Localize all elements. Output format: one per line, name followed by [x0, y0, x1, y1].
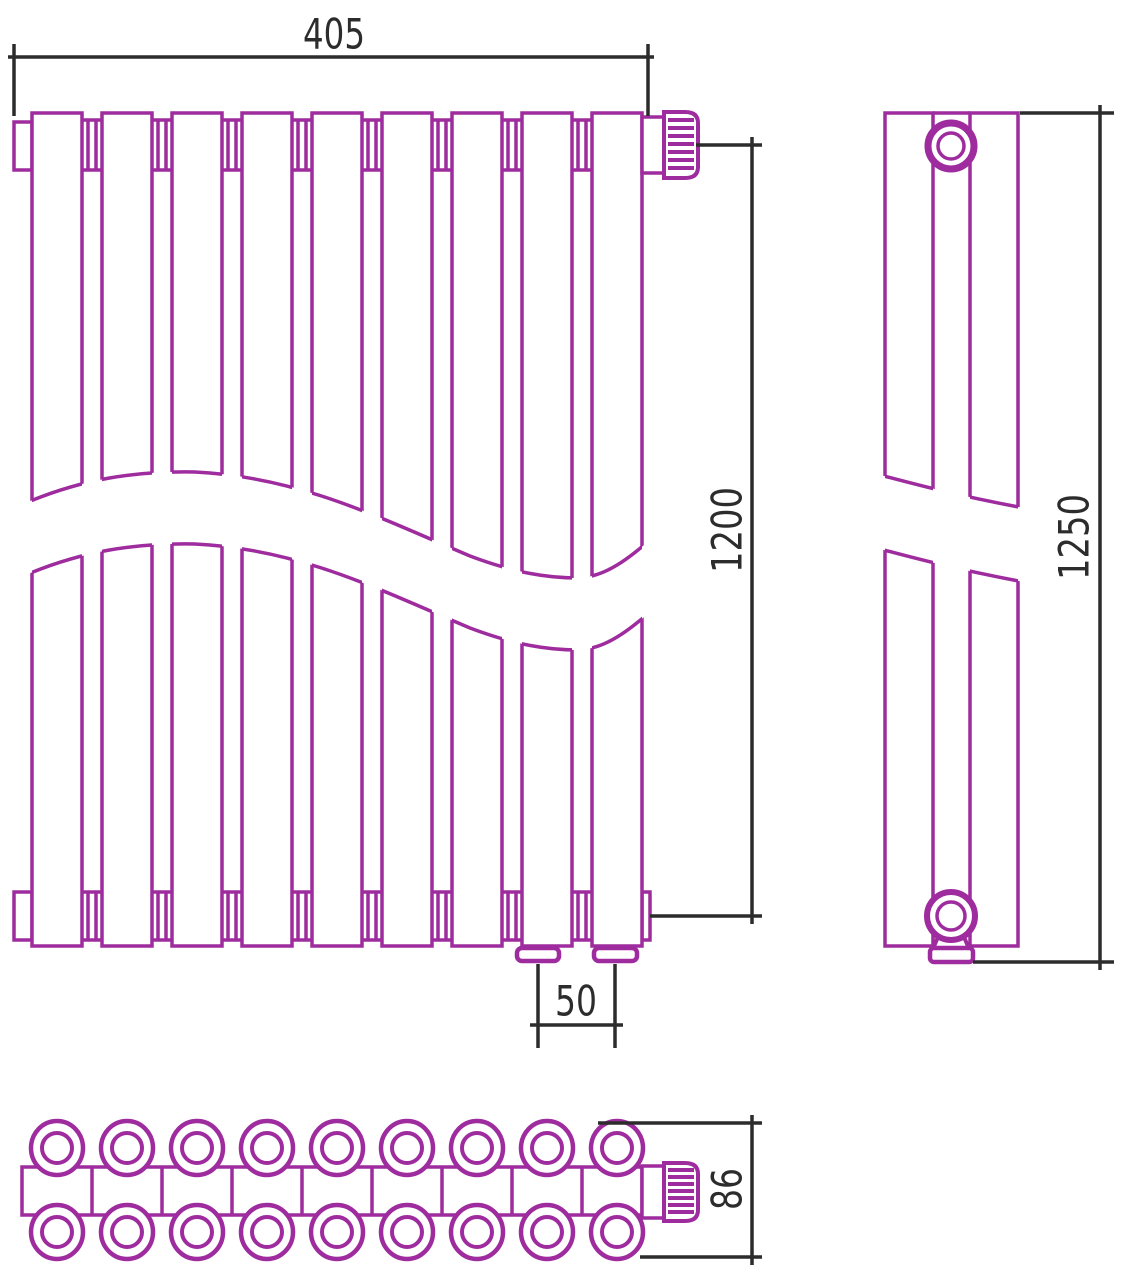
side-view [880, 113, 1024, 962]
tube-bore [322, 1133, 352, 1163]
tube-bore [462, 1133, 492, 1163]
dim-overall-height-value: 1250 [1050, 494, 1099, 580]
dim-connection-spacing-value: 50 [555, 977, 597, 1026]
tube-bore [112, 1217, 142, 1247]
tube-row-back [31, 1205, 643, 1259]
tube-bore [42, 1217, 72, 1247]
bottom-boss-base [930, 948, 973, 962]
valve-knob-ribs [668, 120, 694, 168]
dim-width: 405 [8, 10, 654, 117]
tube-bore [322, 1217, 352, 1247]
top-view [22, 1121, 698, 1259]
valve-knob-ribs-top-view [668, 1170, 694, 1212]
tube-bore [602, 1133, 632, 1163]
valve-body [642, 117, 664, 173]
tube-bore [42, 1133, 72, 1163]
front-view [10, 112, 698, 961]
dim-depth-value: 86 [703, 1168, 752, 1210]
tube-bore [532, 1133, 562, 1163]
tube-bore [252, 1217, 282, 1247]
tube-bore [462, 1217, 492, 1247]
bottom-pipe-boss-outer [927, 892, 975, 940]
radiator-panel [592, 113, 642, 946]
top-pipe-boss-outer [928, 123, 974, 169]
drawing-page: 405 1200 50 1250 86 [0, 0, 1130, 1280]
tube-bore [182, 1133, 212, 1163]
bottom-connection-fitting [517, 948, 559, 961]
radiator-panel [522, 113, 572, 946]
radiator-panel [452, 113, 502, 946]
tube-bore [252, 1133, 282, 1163]
valve-body-top-view [642, 1166, 664, 1218]
dim-connection-height-value: 1200 [703, 487, 752, 573]
radiator-drawing: 405 1200 50 1250 86 [0, 0, 1130, 1280]
tube-bore [532, 1217, 562, 1247]
dim-connection-height: 1200 [650, 137, 762, 924]
dim-width-value: 405 [303, 10, 365, 59]
tube-bore [602, 1217, 632, 1247]
tube-bore [392, 1217, 422, 1247]
tube-bore [112, 1133, 142, 1163]
collector-endcap-top-left [14, 122, 32, 170]
collector-endcap-bottom-left [14, 892, 32, 940]
bottom-connection-fitting [594, 948, 637, 961]
tube-row-front [31, 1121, 643, 1175]
tube-bore [182, 1217, 212, 1247]
dim-connection-spacing: 50 [530, 964, 623, 1048]
tube-bore [392, 1133, 422, 1163]
